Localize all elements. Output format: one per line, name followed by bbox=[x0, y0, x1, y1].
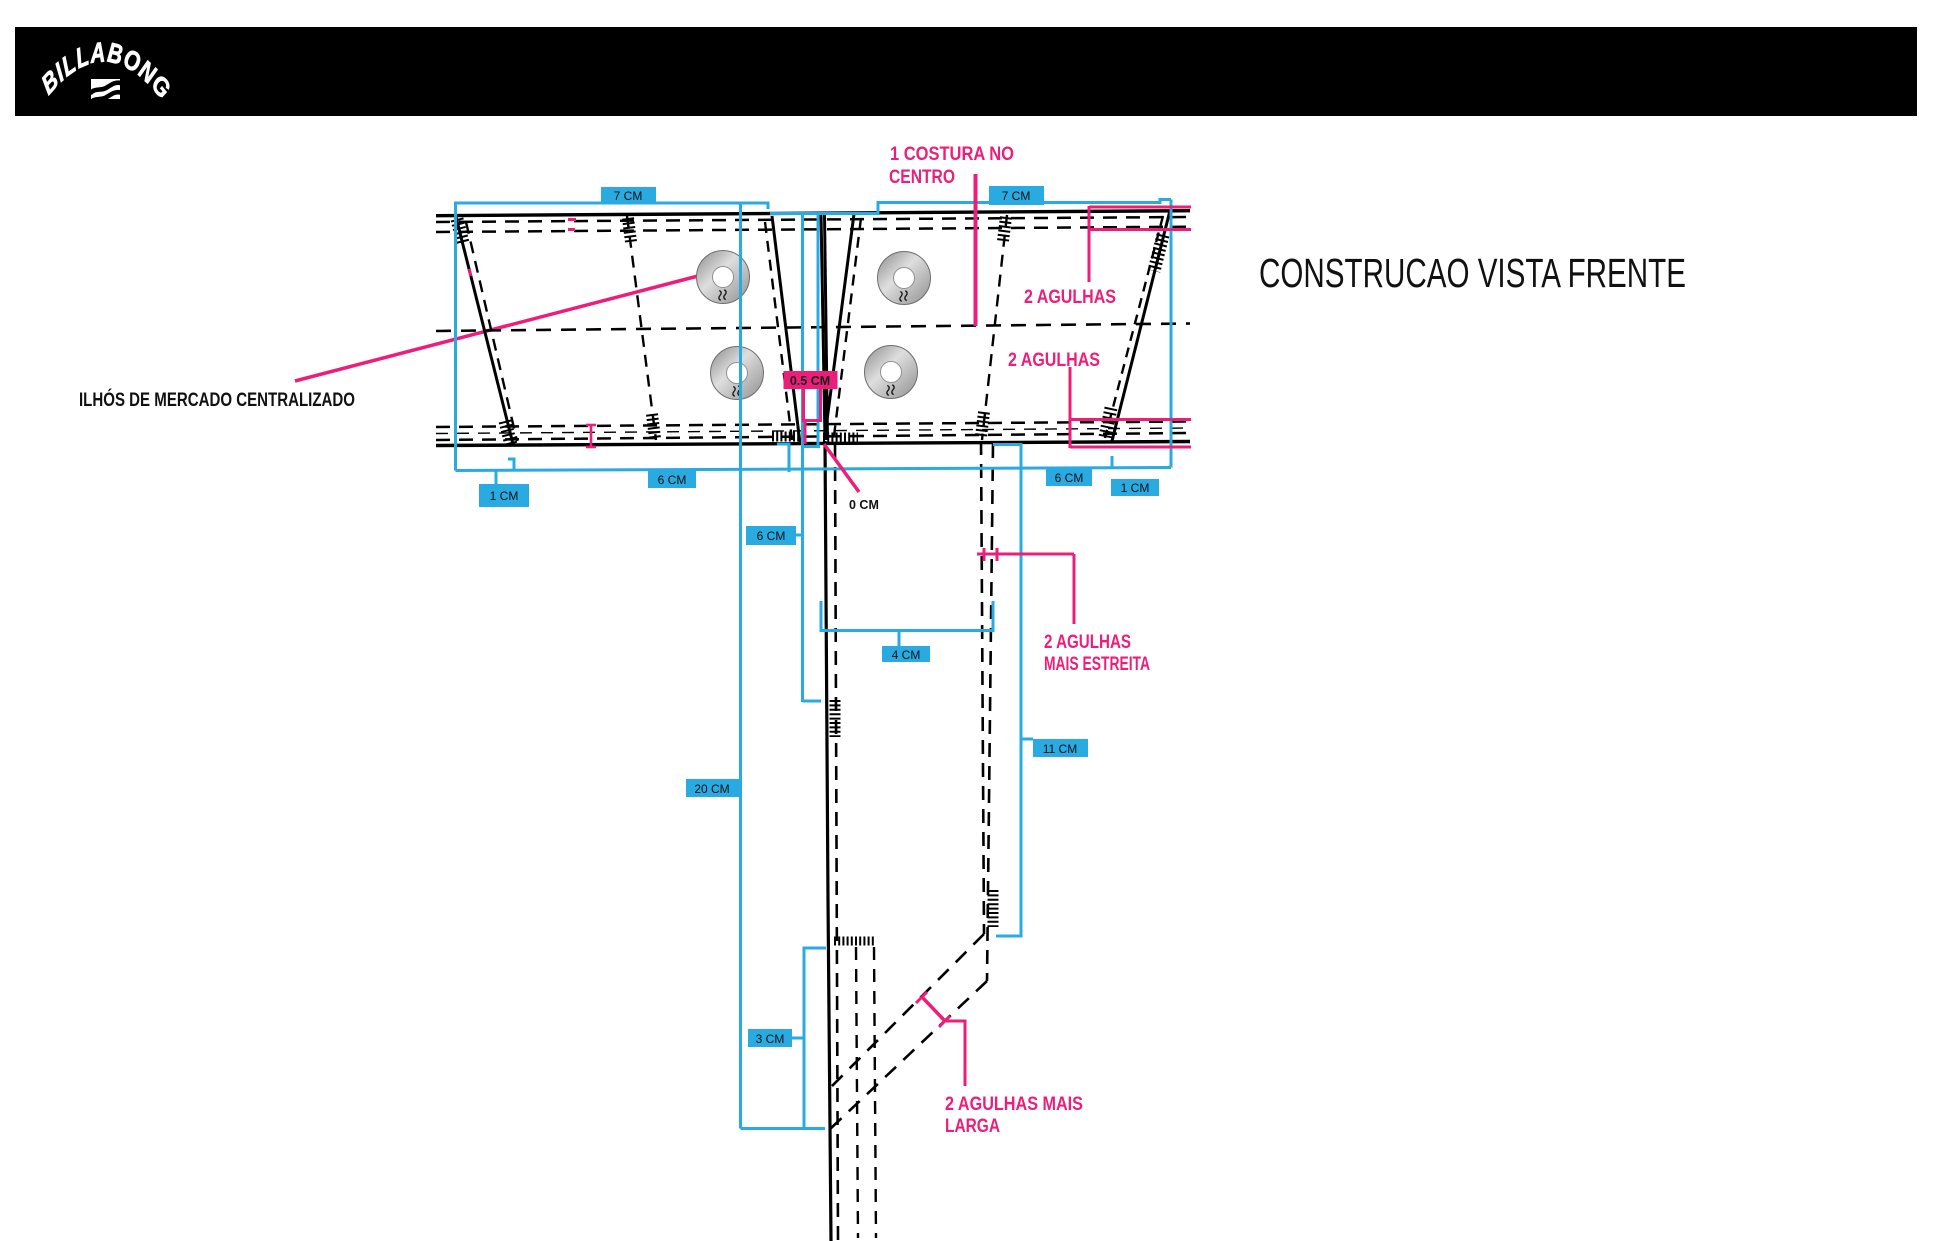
svg-text:1 COSTURA NO: 1 COSTURA NO bbox=[890, 144, 1014, 165]
svg-text:2 AGULHAS: 2 AGULHAS bbox=[1024, 287, 1116, 308]
svg-text:ILHÓS DE MERCADO CENTRALIZADO: ILHÓS DE MERCADO CENTRALIZADO bbox=[79, 389, 355, 411]
svg-text:CENTRO: CENTRO bbox=[889, 167, 955, 188]
svg-text:2 AGULHAS: 2 AGULHAS bbox=[1008, 350, 1100, 371]
svg-text:7 CM: 7 CM bbox=[614, 189, 643, 203]
svg-text:0.5 CM: 0.5 CM bbox=[790, 374, 830, 388]
svg-text:4 CM: 4 CM bbox=[892, 648, 921, 662]
svg-text:MAIS ESTREITA: MAIS ESTREITA bbox=[1044, 654, 1150, 675]
svg-text:2 AGULHAS MAIS: 2 AGULHAS MAIS bbox=[945, 1094, 1083, 1115]
svg-text:20 CM: 20 CM bbox=[694, 782, 729, 796]
svg-text:LARGA: LARGA bbox=[945, 1116, 1000, 1137]
svg-text:6 CM: 6 CM bbox=[1055, 471, 1084, 485]
svg-text:1 CM: 1 CM bbox=[490, 489, 519, 503]
svg-text:6 CM: 6 CM bbox=[757, 529, 786, 543]
svg-text:11 CM: 11 CM bbox=[1043, 742, 1077, 756]
svg-text:CONSTRUCAO VISTA FRENTE: CONSTRUCAO VISTA FRENTE bbox=[1259, 250, 1686, 296]
svg-text:2 AGULHAS: 2 AGULHAS bbox=[1044, 632, 1131, 653]
svg-text:7 CM: 7 CM bbox=[1002, 189, 1031, 203]
svg-text:0 CM: 0 CM bbox=[849, 498, 879, 512]
svg-text:1 CM: 1 CM bbox=[1121, 481, 1150, 495]
svg-text:6 CM: 6 CM bbox=[658, 473, 687, 487]
svg-text:3 CM: 3 CM bbox=[756, 1032, 785, 1046]
